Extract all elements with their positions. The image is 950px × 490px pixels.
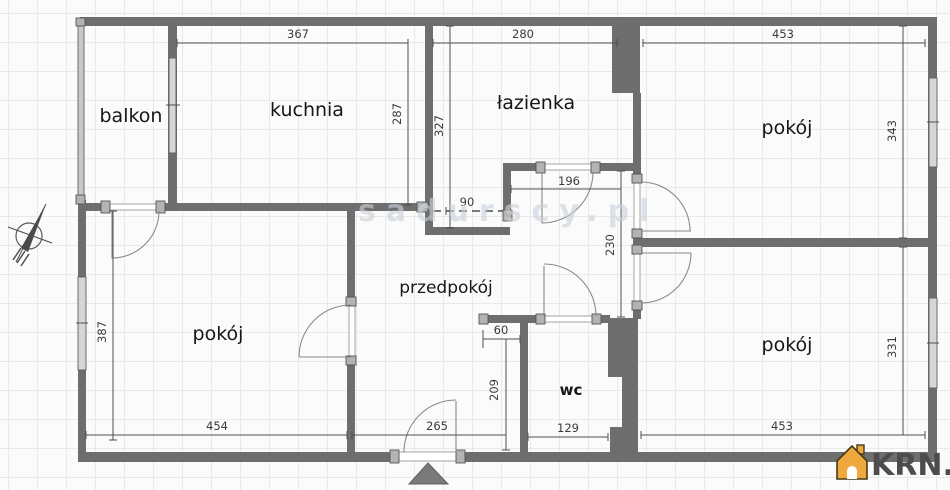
dimline-wc-height (502, 339, 510, 450)
floorplan-drawing: 367 280 453 287 327 343 90 196 230 387 4… (0, 0, 950, 490)
dim-lazienka-width: 280 (512, 27, 534, 41)
threshold-wc-door (545, 316, 594, 322)
house-icon (837, 445, 867, 479)
jamb-pokoj-br-bottom (632, 301, 642, 310)
dim-wc-height: 209 (487, 379, 501, 401)
jamb-pokoj-br-top (632, 245, 642, 254)
threshold-lazienka-door (545, 164, 593, 170)
room-label-przedpokoj: przedpokój (399, 278, 493, 298)
wall-below-shaft (633, 93, 641, 182)
door-balcony (112, 211, 159, 258)
jamb-lazienka-left (536, 162, 545, 173)
threshold-pokoj-bl-door (349, 306, 355, 356)
dimline-pokoj-bl-height (109, 211, 117, 440)
dim-hall-height: 230 (603, 234, 617, 256)
room-label-pokoj-top-right: pokój (762, 117, 813, 139)
entrance-arrow-icon (409, 463, 448, 484)
dimline-pokoj-tr-height (899, 26, 907, 238)
dim-kuchnia-width: 367 (287, 27, 309, 41)
room-label-pokoj-bottom-right: pokój (762, 334, 813, 356)
room-label-lazienka: łazienka (497, 92, 575, 114)
dimline-kuchnia-height (404, 43, 412, 205)
door-wc (544, 264, 596, 316)
dim-lazienka-height: 327 (432, 115, 446, 137)
wall-przedpokoj-left-upper (347, 211, 355, 302)
north-arrow-icon (8, 204, 52, 266)
jamb-entrance-right (456, 450, 465, 463)
floorplan-canvas: 367 280 453 287 327 343 90 196 230 387 4… (0, 0, 950, 490)
dimline-pokoj-br-height (899, 247, 907, 435)
duct-shaft-top (612, 26, 640, 93)
dim-pokoj-tr-width: 453 (772, 27, 794, 41)
dimline-hall-height (617, 171, 625, 317)
jamb-pokoj-tr-bottom (632, 229, 642, 238)
wall-rooms-divider (641, 238, 928, 247)
dim-pokoj-bl-width: 454 (206, 419, 228, 433)
wall-wc-top (483, 315, 542, 323)
wall-bottom-left-part (78, 452, 397, 462)
jamb-pokoj-tr-top (632, 174, 642, 183)
jamb-balcony-right (156, 201, 165, 213)
threshold-balcony-door (108, 204, 157, 210)
krn-logo: KRN.pl (837, 445, 950, 483)
dim-pokoj-bl-height: 387 (95, 321, 109, 343)
duct-shaft-wc-mid (622, 377, 638, 427)
jamb-balcony-left (101, 201, 110, 213)
dim-lazienka-door-wall: 196 (558, 174, 580, 188)
wall-wc-left (520, 323, 528, 452)
dim-wc-width: 129 (557, 421, 579, 435)
room-label-balkon: balkon (100, 105, 163, 127)
room-label-kuchnia: kuchnia (270, 99, 344, 121)
door-pokoj-bl (299, 305, 351, 357)
room-label-wc: wc (560, 381, 583, 399)
dim-hall-nook: 60 (494, 323, 509, 337)
jamb-entrance-left (390, 450, 399, 463)
room-label-pokoj-bottom-left: pokój (193, 323, 244, 345)
dim-pokoj-tr-height: 343 (885, 120, 899, 142)
threshold-pokoj-br-door (634, 254, 640, 302)
watermark: sadurscy.pl (358, 194, 659, 229)
krn-logo-text: KRN.pl (871, 448, 950, 483)
dim-hall-width: 265 (426, 419, 448, 433)
dim-pokoj-br-height: 331 (885, 336, 899, 358)
wall-przedpokoj-left-lower (347, 358, 355, 452)
door-pokoj-br (641, 253, 691, 303)
wall-top (80, 17, 937, 26)
balcony-railing (78, 20, 84, 203)
duct-shaft-wc-top (608, 318, 638, 377)
dim-pokoj-br-width: 453 (771, 419, 793, 433)
railing-cap-bottom (76, 195, 85, 204)
dim-kuchnia-height: 287 (390, 103, 404, 125)
duct-shaft-wc-bottom (610, 427, 638, 452)
threshold-entrance-door (399, 452, 456, 461)
jamb-lazienka-right (591, 162, 600, 173)
railing-cap-top (76, 18, 85, 26)
jamb-wc-wall-start (479, 314, 488, 324)
